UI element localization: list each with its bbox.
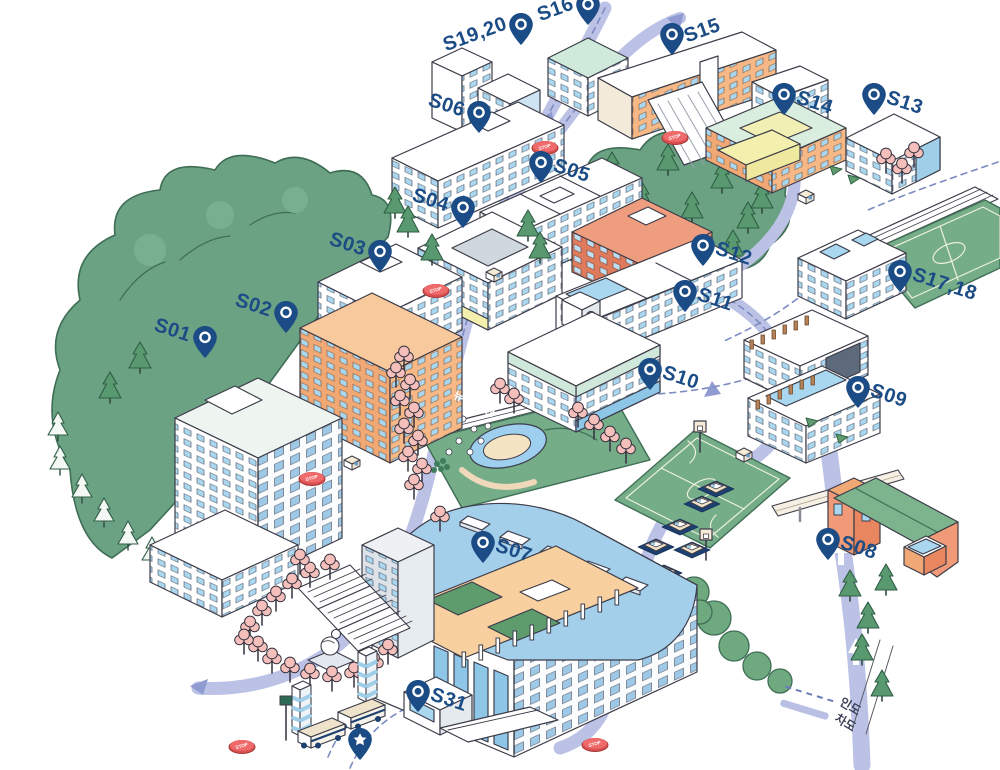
location-pin-icon bbox=[845, 375, 871, 409]
location-pin-icon bbox=[273, 300, 299, 334]
location-pin-icon bbox=[815, 527, 841, 561]
location-pin-icon bbox=[637, 357, 663, 391]
location-pin-icon bbox=[672, 279, 698, 313]
location-pin-icon bbox=[528, 150, 554, 184]
location-pin-icon bbox=[405, 679, 431, 713]
location-pin-icon bbox=[508, 12, 534, 46]
campus-map: STOP bbox=[0, 0, 1000, 770]
star-pin-icon bbox=[347, 727, 373, 761]
location-pin-icon bbox=[861, 82, 887, 116]
location-pin-icon bbox=[771, 82, 797, 116]
location-pin-icon bbox=[367, 239, 393, 273]
location-pin-icon bbox=[470, 530, 496, 564]
location-pin-icon bbox=[192, 325, 218, 359]
location-pin-icon bbox=[690, 233, 716, 267]
location-pin-icon bbox=[450, 195, 476, 229]
location-pin-icon bbox=[887, 259, 913, 293]
location-pin-icon bbox=[575, 0, 601, 26]
location-pin-icon bbox=[466, 100, 492, 134]
building-s13[interactable] bbox=[846, 114, 940, 194]
